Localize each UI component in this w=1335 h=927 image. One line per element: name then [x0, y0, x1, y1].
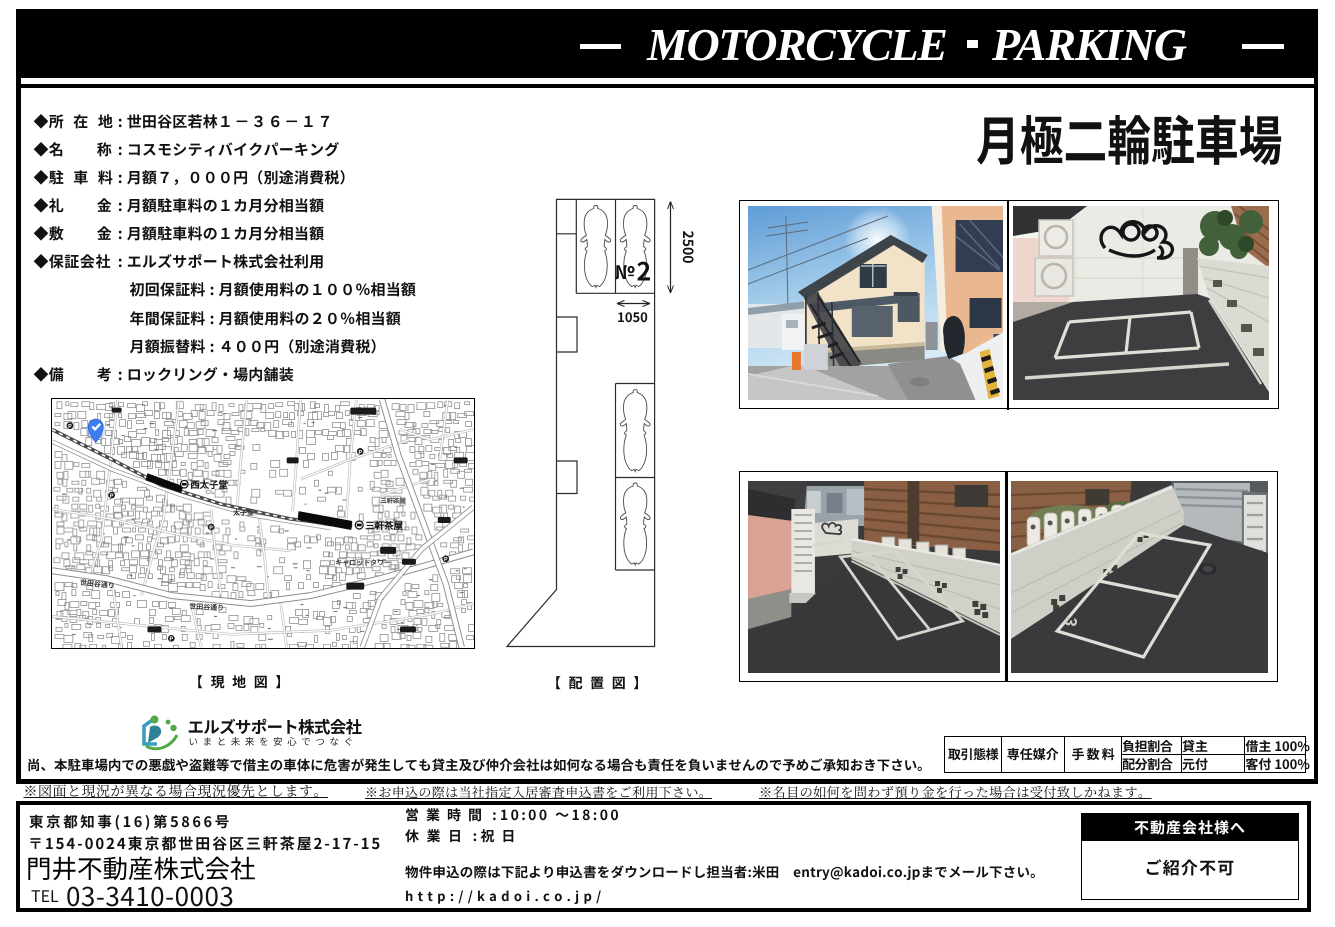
svg-text:P: P: [359, 450, 363, 456]
svg-text:P: P: [110, 494, 114, 500]
svg-text:太子堂: 太子堂: [232, 508, 254, 518]
svg-text:三軒茶屋: 三軒茶屋: [381, 496, 407, 505]
svg-text:2: 2: [637, 253, 652, 289]
svg-text:1050: 1050: [617, 307, 648, 326]
svg-text:P: P: [170, 637, 174, 643]
svg-text:2500: 2500: [678, 230, 698, 263]
svg-text:西太子堂: 西太子堂: [191, 477, 229, 491]
svg-text:キャロットタワー: キャロットタワー: [336, 558, 392, 568]
svg-text:P: P: [68, 424, 72, 430]
svg-text:P: P: [210, 526, 214, 532]
svg-text:№: №: [615, 258, 636, 285]
svg-text:三軒茶屋: 三軒茶屋: [366, 518, 404, 532]
svg-text:世田谷通り: 世田谷通り: [189, 602, 224, 614]
svg-text:P: P: [444, 557, 448, 563]
